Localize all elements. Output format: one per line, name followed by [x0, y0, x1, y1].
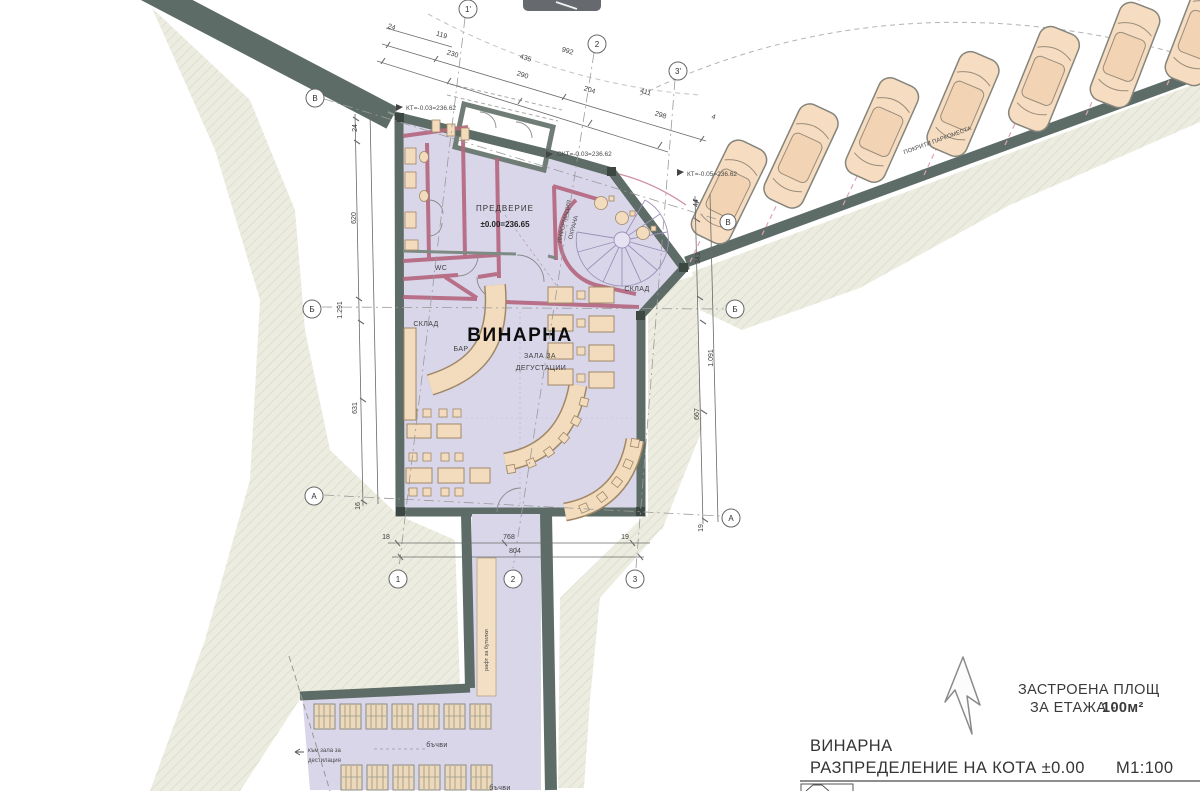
room-label-wc: WC: [435, 265, 447, 272]
hall-title: ВИНАРНА: [467, 325, 572, 346]
stamp-box: [801, 784, 853, 791]
dim-label: 631: [352, 402, 359, 414]
bottle-shelf: [477, 558, 496, 696]
axis-bubble-label: Б: [309, 305, 314, 314]
dim-label: 4: [711, 114, 717, 122]
shelf-label: рафт за бутилки: [484, 629, 490, 671]
dim-label: 1.091: [708, 349, 715, 367]
axis-bubble-label: 3: [633, 575, 638, 584]
dim-label: 19: [698, 524, 705, 532]
built-area-label-1: ЗАСТРОЕНА ПЛОЩ: [1018, 682, 1160, 698]
barrel-row-1: [314, 704, 491, 729]
axis-bubble-label: 2: [595, 40, 600, 49]
dim-label: 230: [446, 50, 459, 60]
car: [1162, 0, 1200, 89]
overlay-button[interactable]: [523, 0, 601, 11]
corridor-wall-right: [546, 514, 551, 790]
dim-label: 804: [509, 548, 521, 555]
built-area-value: 100м²: [1102, 700, 1144, 716]
distillery-arrow: [295, 749, 304, 755]
dim-label: 341: [695, 252, 702, 264]
dim-label: 298: [654, 111, 667, 121]
corridor-wall-left: [466, 514, 470, 688]
dim-label: 768: [503, 534, 515, 541]
dim-label: 435: [519, 54, 532, 64]
axis-bubble-label: 1': [465, 5, 471, 14]
dim-label: 18: [382, 534, 390, 541]
room-label-bar: БАР: [454, 346, 469, 353]
barrels-label-1: бъчви: [426, 741, 447, 749]
building: ПРЕДВЕРИЕ ±0.00=236.65 WC ИНФОРМАЦИЯ ОХР…: [395, 84, 688, 516]
dim-label: 44: [693, 199, 700, 207]
title-block: ЗАСТРОЕНА ПЛОЩ ЗА ЕТАЖА - 100м² ВИНАРНА …: [800, 657, 1200, 791]
distillery-label-1: към зала за: [308, 748, 342, 754]
dim-label: 204: [583, 86, 596, 96]
axis-bubble-label: 1: [396, 575, 401, 584]
road-dashed-edge-2: [428, 14, 700, 95]
axis-bubble-label: В: [312, 94, 317, 103]
dim-label: 1.291: [337, 301, 344, 319]
drawing-title: ВИНАРНА: [810, 737, 893, 755]
bar-counter: [404, 328, 416, 420]
level-label-kt-top: КТ=-0.03=236.62: [406, 105, 456, 112]
car: [760, 100, 842, 212]
room-label-sklad-hall: СКЛАД: [413, 321, 438, 328]
car: [842, 74, 923, 186]
drawing-subtitle: РАЗПРЕДЕЛЕНИЕ НА КОТА ±0.00: [810, 759, 1085, 777]
dim-label: 24: [352, 124, 359, 132]
hall-sub2: ДЕГУСТАЦИИ: [516, 365, 566, 372]
axis-bubble-label: Б: [732, 305, 737, 314]
room-label-sklad-upper: СКЛАД: [624, 286, 649, 293]
north-arrow-icon: [945, 657, 980, 734]
axis-bubble-label: 2: [511, 575, 516, 584]
barrels-label-2: бъчви: [489, 784, 510, 791]
site-plan-svg: ПОКРИТИ ПАРКОМЕСТА: [0, 0, 1200, 791]
axis-bubble-label: А: [728, 514, 734, 523]
axis-bubble-label: 3': [675, 67, 681, 76]
dim-label: 19: [621, 534, 629, 541]
dim-label: 667: [694, 408, 701, 420]
level-label-skt: СКТ=-0.03=236.62: [557, 151, 612, 158]
terrain-below-corridor: [558, 515, 662, 788]
dim-label: 620: [351, 212, 358, 224]
axis-bubble-label: А: [311, 492, 317, 501]
axis-bubble-label: В: [725, 218, 730, 227]
room-label-vestibule-level: ±0.00=236.65: [480, 220, 530, 229]
level-label-kt-right: КТ=-0.05=236.62: [687, 171, 737, 178]
dim-label: 16: [355, 502, 362, 510]
room-label-vestibule: ПРЕДВЕРИЕ: [476, 204, 534, 213]
hall-sub1: ЗАЛА ЗА: [524, 353, 556, 360]
dim-label: 992: [561, 47, 574, 57]
drawing-scale: М1:100: [1116, 759, 1173, 777]
distillery-label-2: дестилация: [308, 758, 341, 764]
dim-label: 290: [516, 71, 529, 81]
dim-label: 119: [435, 31, 448, 41]
